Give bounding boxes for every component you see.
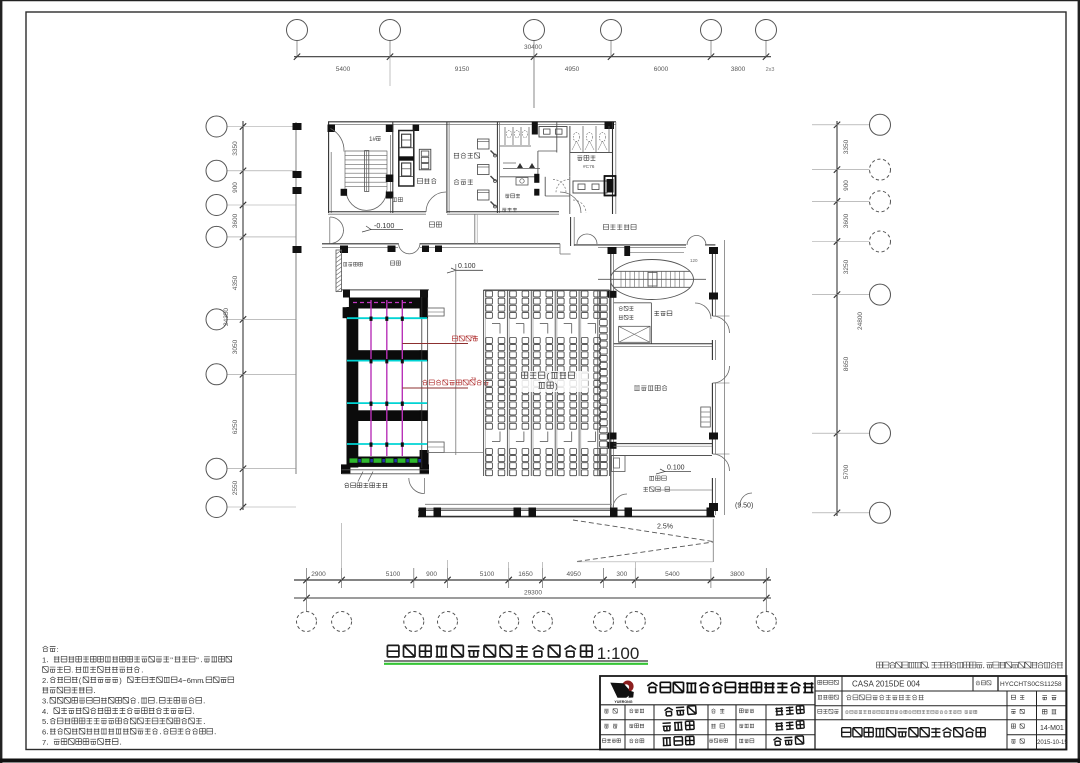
svg-text:2x3: 2x3 xyxy=(766,67,775,73)
svg-text:900: 900 xyxy=(232,182,239,193)
svg-text:3050: 3050 xyxy=(232,339,239,354)
svg-text:1:100: 1:100 xyxy=(597,644,640,663)
svg-text:9150: 9150 xyxy=(455,66,470,73)
svg-text:5400: 5400 xyxy=(665,571,680,578)
svg-text:5100: 5100 xyxy=(480,571,495,578)
svg-text:29300: 29300 xyxy=(524,590,542,597)
svg-text:HYCCHTS0CS11258: HYCCHTS0CS11258 xyxy=(1000,681,1062,688)
svg-text:3600: 3600 xyxy=(843,213,850,228)
svg-text:0.100: 0.100 xyxy=(667,465,685,472)
svg-text:900: 900 xyxy=(843,180,850,191)
svg-text:CASA 2015DE 004: CASA 2015DE 004 xyxy=(852,680,921,689)
svg-text:#C76: #C76 xyxy=(583,164,595,170)
svg-text:4350: 4350 xyxy=(232,275,239,290)
svg-text:-0.100: -0.100 xyxy=(374,221,394,230)
svg-text::: : xyxy=(57,645,59,654)
svg-text:2a: 2a xyxy=(471,334,477,340)
svg-text:5400: 5400 xyxy=(336,66,351,73)
svg-text:(9.50): (9.50) xyxy=(735,503,753,510)
svg-text:4: 4 xyxy=(42,707,46,716)
svg-text:900: 900 xyxy=(426,571,437,578)
svg-text:2.5%: 2.5% xyxy=(657,524,673,531)
svg-text:2a: 2a xyxy=(471,376,477,382)
svg-text:3: 3 xyxy=(42,697,46,706)
svg-text:3800: 3800 xyxy=(730,571,745,578)
svg-text:2015-10-15: 2015-10-15 xyxy=(1037,740,1068,746)
svg-text:6: 6 xyxy=(42,728,46,737)
svg-text:5100: 5100 xyxy=(386,571,401,578)
svg-text:0.100: 0.100 xyxy=(458,263,476,270)
svg-text:6250: 6250 xyxy=(232,419,239,434)
svg-text:8650: 8650 xyxy=(843,356,850,371)
svg-text:24800: 24800 xyxy=(857,312,864,330)
svg-text:6000: 6000 xyxy=(654,66,669,73)
svg-text:300: 300 xyxy=(616,571,627,578)
svg-text:3250: 3250 xyxy=(843,259,850,274)
svg-text:3350: 3350 xyxy=(232,141,239,156)
svg-text:2900: 2900 xyxy=(311,571,326,578)
svg-text:1650: 1650 xyxy=(518,571,533,578)
svg-text:4950: 4950 xyxy=(566,571,581,578)
svg-text:YUERONG: YUERONG xyxy=(614,700,632,704)
svg-text:(: ( xyxy=(546,371,549,381)
svg-text:3800: 3800 xyxy=(731,66,746,73)
svg-text:3600: 3600 xyxy=(232,213,239,228)
svg-text:30400: 30400 xyxy=(524,44,542,51)
svg-text:7: 7 xyxy=(42,738,46,747)
svg-text:120: 120 xyxy=(690,258,698,263)
svg-text:): ) xyxy=(555,381,558,391)
svg-text:1: 1 xyxy=(42,655,46,664)
svg-text:1#: 1# xyxy=(369,136,377,143)
svg-text:24350: 24350 xyxy=(223,308,230,326)
svg-text:4~6mm: 4~6mm xyxy=(178,676,203,685)
svg-text:2550: 2550 xyxy=(232,480,239,495)
svg-text:5700: 5700 xyxy=(843,464,850,479)
svg-text:3350: 3350 xyxy=(843,139,850,154)
svg-text:14-M01: 14-M01 xyxy=(1040,725,1064,732)
svg-text:.: . xyxy=(71,666,73,675)
svg-text:5: 5 xyxy=(42,717,46,726)
svg-text:4950: 4950 xyxy=(565,66,580,73)
svg-text:": " xyxy=(170,655,173,664)
svg-text:2: 2 xyxy=(42,676,46,685)
svg-text:": " xyxy=(196,655,199,664)
